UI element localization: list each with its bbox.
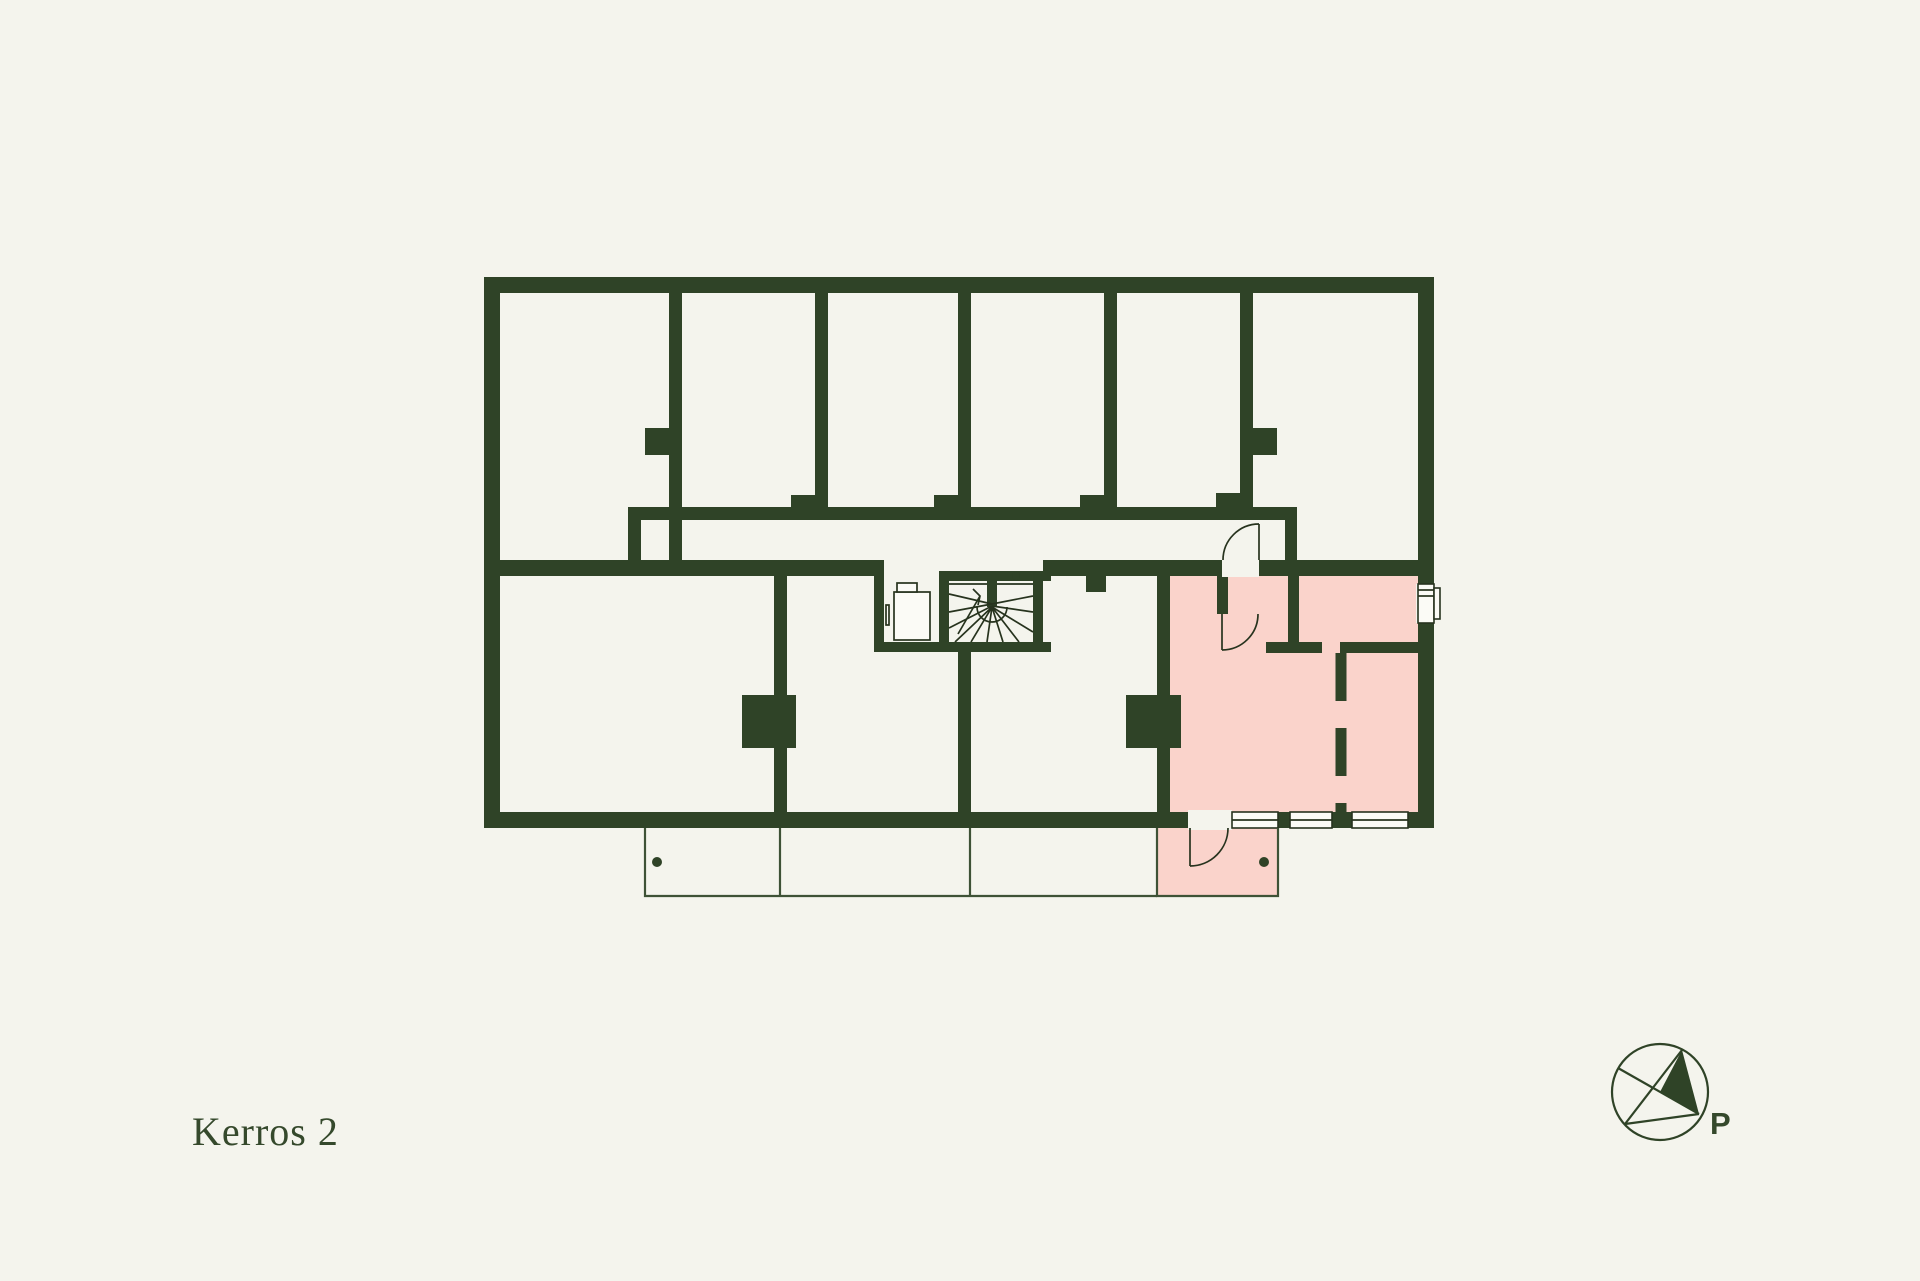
- balcony-outline-west: [645, 828, 1157, 896]
- outer-wall-top: [484, 277, 1434, 293]
- bedroom-wall: [1340, 642, 1418, 653]
- stair-direction-arrow: [958, 589, 980, 634]
- apartment-area[interactable]: [1157, 576, 1418, 812]
- lower-wall-east: [1259, 560, 1418, 576]
- balcony-column-dot-1: [652, 857, 662, 867]
- apartment-left-wall: [1157, 576, 1170, 812]
- compass-line-3: [1625, 1114, 1699, 1124]
- elevator: [886, 583, 930, 640]
- stairwell-right-wall: [1033, 571, 1043, 652]
- outer-wall-left: [484, 277, 500, 828]
- divider-1-nub: [645, 428, 669, 455]
- block-bottom-wall: [874, 642, 1051, 652]
- hall-kitchen-wall: [1288, 576, 1299, 642]
- lower-wall-nub: [1086, 576, 1106, 592]
- top-storage-rooms: [645, 293, 1277, 576]
- hall-kitchen-cap: [1266, 642, 1322, 653]
- floor-plan-page: Kerros 2 P: [0, 0, 1920, 1281]
- balcony-glass-panel: [1232, 812, 1278, 828]
- elevator-rail: [886, 605, 889, 625]
- stair-spindle: [987, 571, 997, 607]
- lower-wall-west: [500, 560, 884, 576]
- highlighted-apartment[interactable]: [1157, 576, 1418, 896]
- lower-wall-mid: [1043, 560, 1222, 576]
- north-arrow-icon: [1598, 1030, 1818, 1190]
- divider-5-foot: [1216, 493, 1240, 507]
- entry-hall-wall: [1217, 576, 1228, 614]
- lower-rooms: [742, 576, 971, 812]
- stair-elevator-block: [874, 560, 1051, 652]
- spiral-stair: [949, 571, 1033, 642]
- divider-5-nub: [1253, 428, 1277, 455]
- compass-needle: [1660, 1050, 1699, 1114]
- divider-3: [958, 293, 971, 520]
- north-label: P: [1710, 1106, 1731, 1142]
- elevator-car: [894, 592, 930, 640]
- divider-2: [815, 293, 828, 520]
- bottom-window-2: [1352, 812, 1408, 828]
- bottom-window-1: [1290, 812, 1332, 828]
- entrance-door: [1223, 524, 1259, 560]
- divider-5: [1240, 293, 1253, 507]
- lower-pillar-1: [742, 695, 796, 748]
- elevator-door: [897, 583, 917, 592]
- lower-divider-2: [958, 652, 971, 812]
- right-wall-window: [1418, 584, 1440, 623]
- corridor-top-wall: [628, 507, 1297, 520]
- lower-divider-1: [774, 576, 787, 812]
- balcony-column-dot-2: [1259, 857, 1269, 867]
- compass: P: [1598, 1030, 1818, 1190]
- stair-dot: [1012, 572, 1020, 580]
- stairwell-left-wall: [939, 571, 949, 652]
- floor-label: Kerros 2: [192, 1108, 339, 1155]
- block-left-wall: [874, 560, 884, 652]
- outer-wall-right: [1418, 277, 1434, 828]
- apartment-pillar: [1126, 695, 1181, 748]
- divider-1: [669, 293, 682, 576]
- divider-4: [1104, 293, 1117, 520]
- balcony-door-opening: [1188, 810, 1232, 830]
- entrance-opening: [1222, 559, 1259, 577]
